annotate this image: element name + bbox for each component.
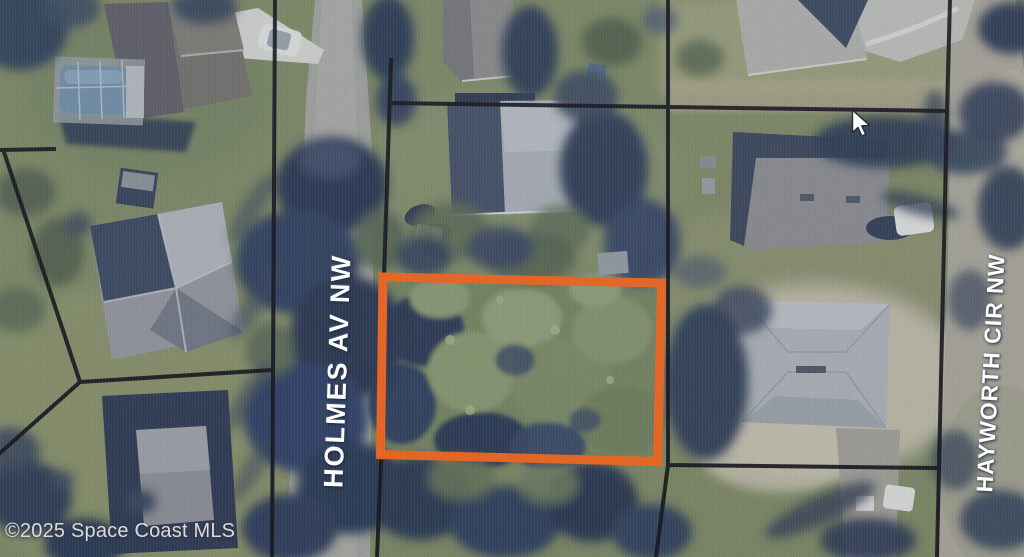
- mouse-cursor-icon: [851, 109, 873, 144]
- aerial-map[interactable]: HOLMES AV NW HAYWORTH CIR NW ©2025 Space…: [0, 0, 1024, 557]
- map-attribution: ©2025 Space Coast MLS: [5, 520, 235, 543]
- aerial-photo: [0, 0, 1024, 557]
